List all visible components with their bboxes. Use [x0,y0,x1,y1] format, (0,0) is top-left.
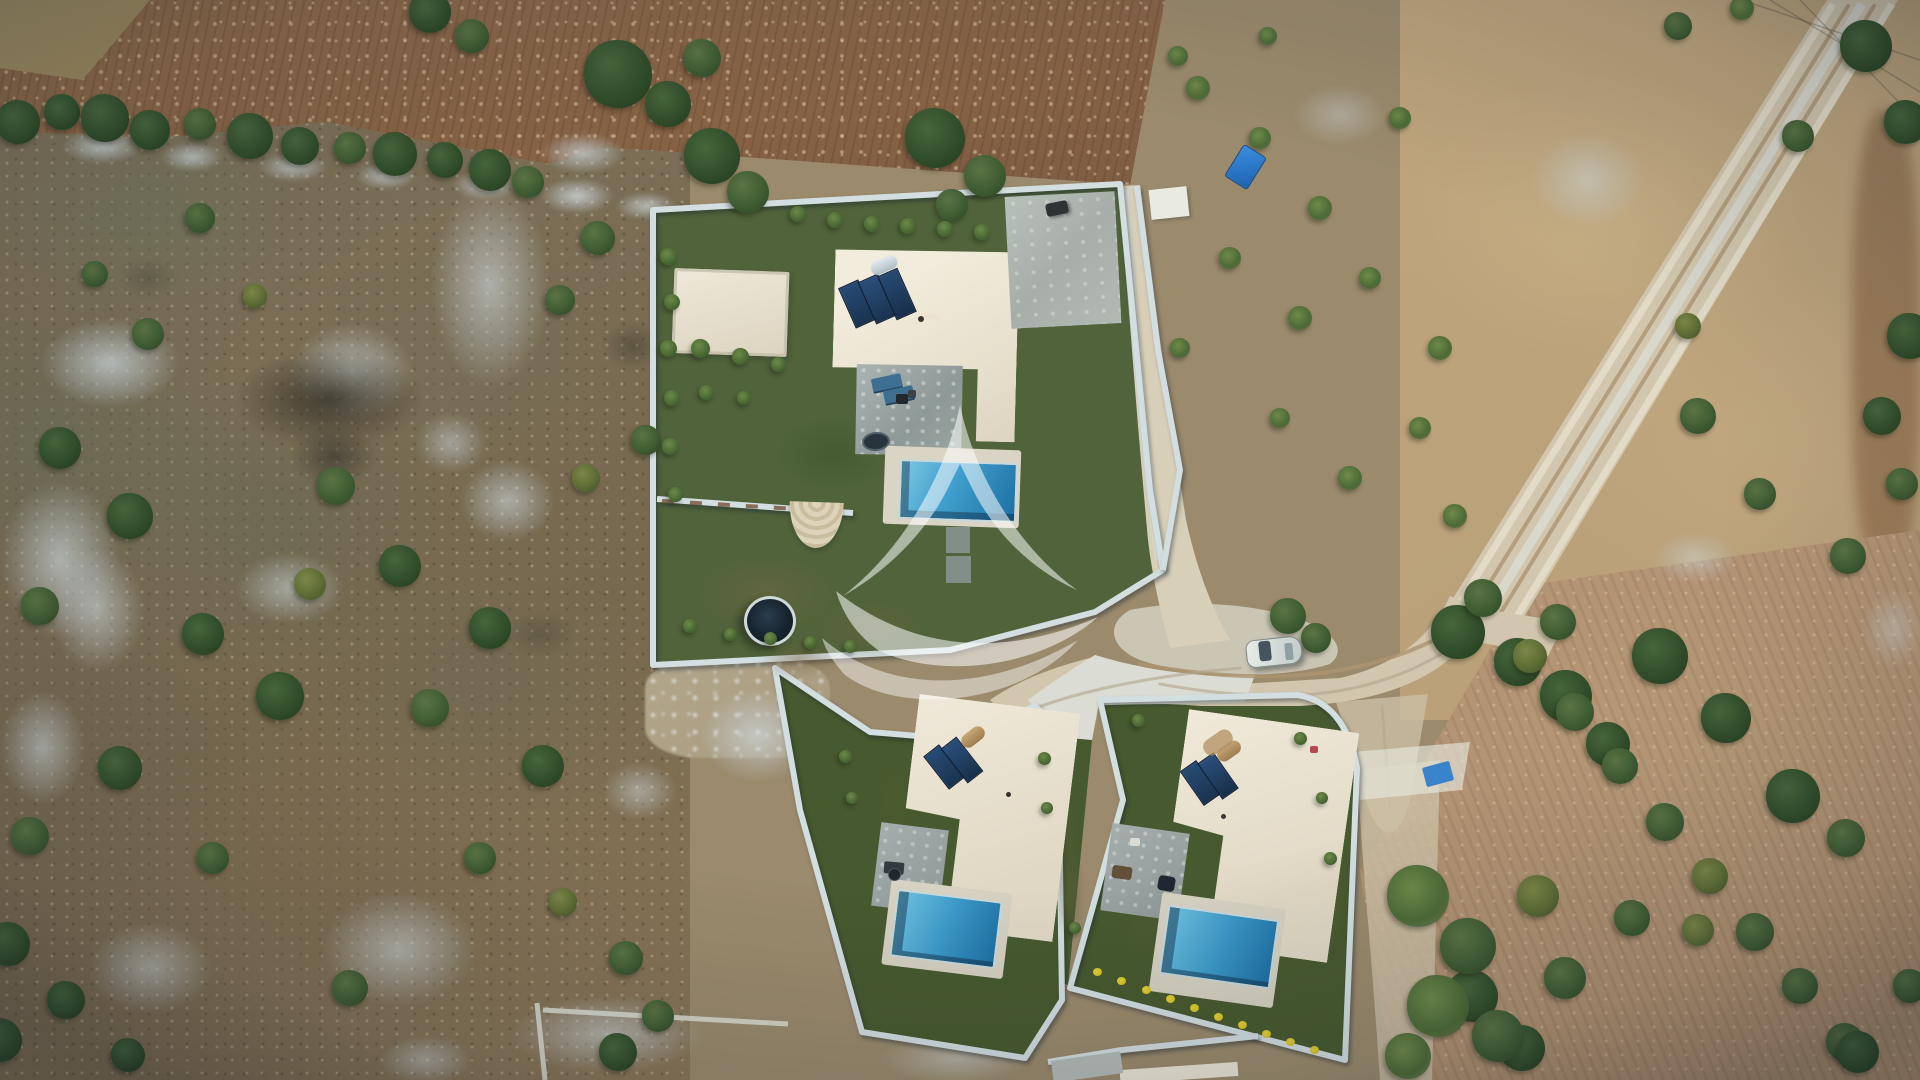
aerial-photo [0,0,1920,1080]
photo-vignette [0,0,1920,1080]
